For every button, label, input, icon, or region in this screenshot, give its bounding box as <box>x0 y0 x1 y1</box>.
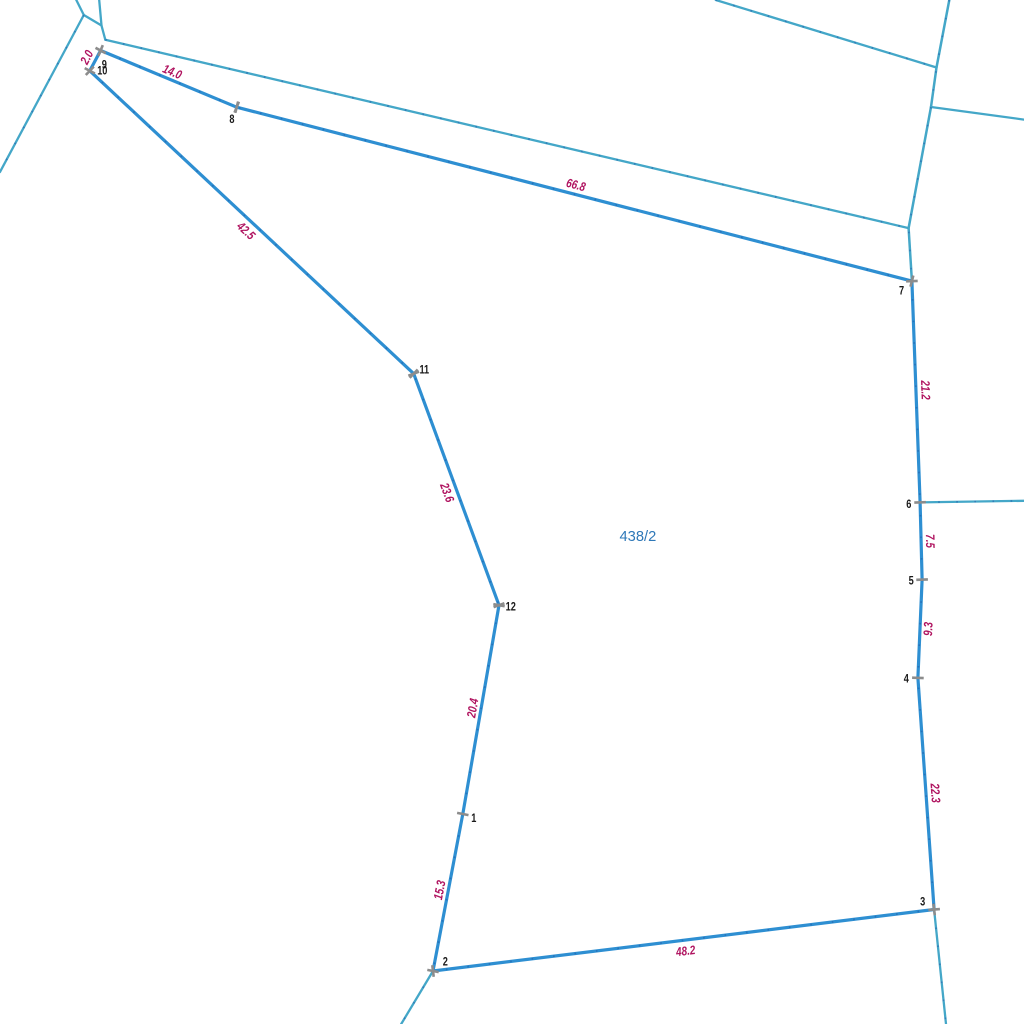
svg-text:4: 4 <box>904 674 909 686</box>
svg-text:2: 2 <box>443 957 448 969</box>
svg-text:438/2: 438/2 <box>620 529 657 545</box>
svg-text:10: 10 <box>97 66 107 78</box>
svg-text:6: 6 <box>906 499 911 511</box>
svg-text:5: 5 <box>909 576 914 588</box>
svg-text:48.2: 48.2 <box>674 944 696 960</box>
svg-text:7: 7 <box>899 286 904 298</box>
svg-text:7.5: 7.5 <box>923 534 937 549</box>
svg-text:1: 1 <box>471 813 476 825</box>
svg-text:11: 11 <box>419 365 429 377</box>
svg-text:22.3: 22.3 <box>927 782 942 804</box>
svg-text:21.2: 21.2 <box>918 379 932 400</box>
svg-text:9.3: 9.3 <box>922 621 936 636</box>
svg-text:8: 8 <box>229 114 234 126</box>
svg-text:12: 12 <box>506 602 516 614</box>
svg-text:3: 3 <box>920 897 925 909</box>
